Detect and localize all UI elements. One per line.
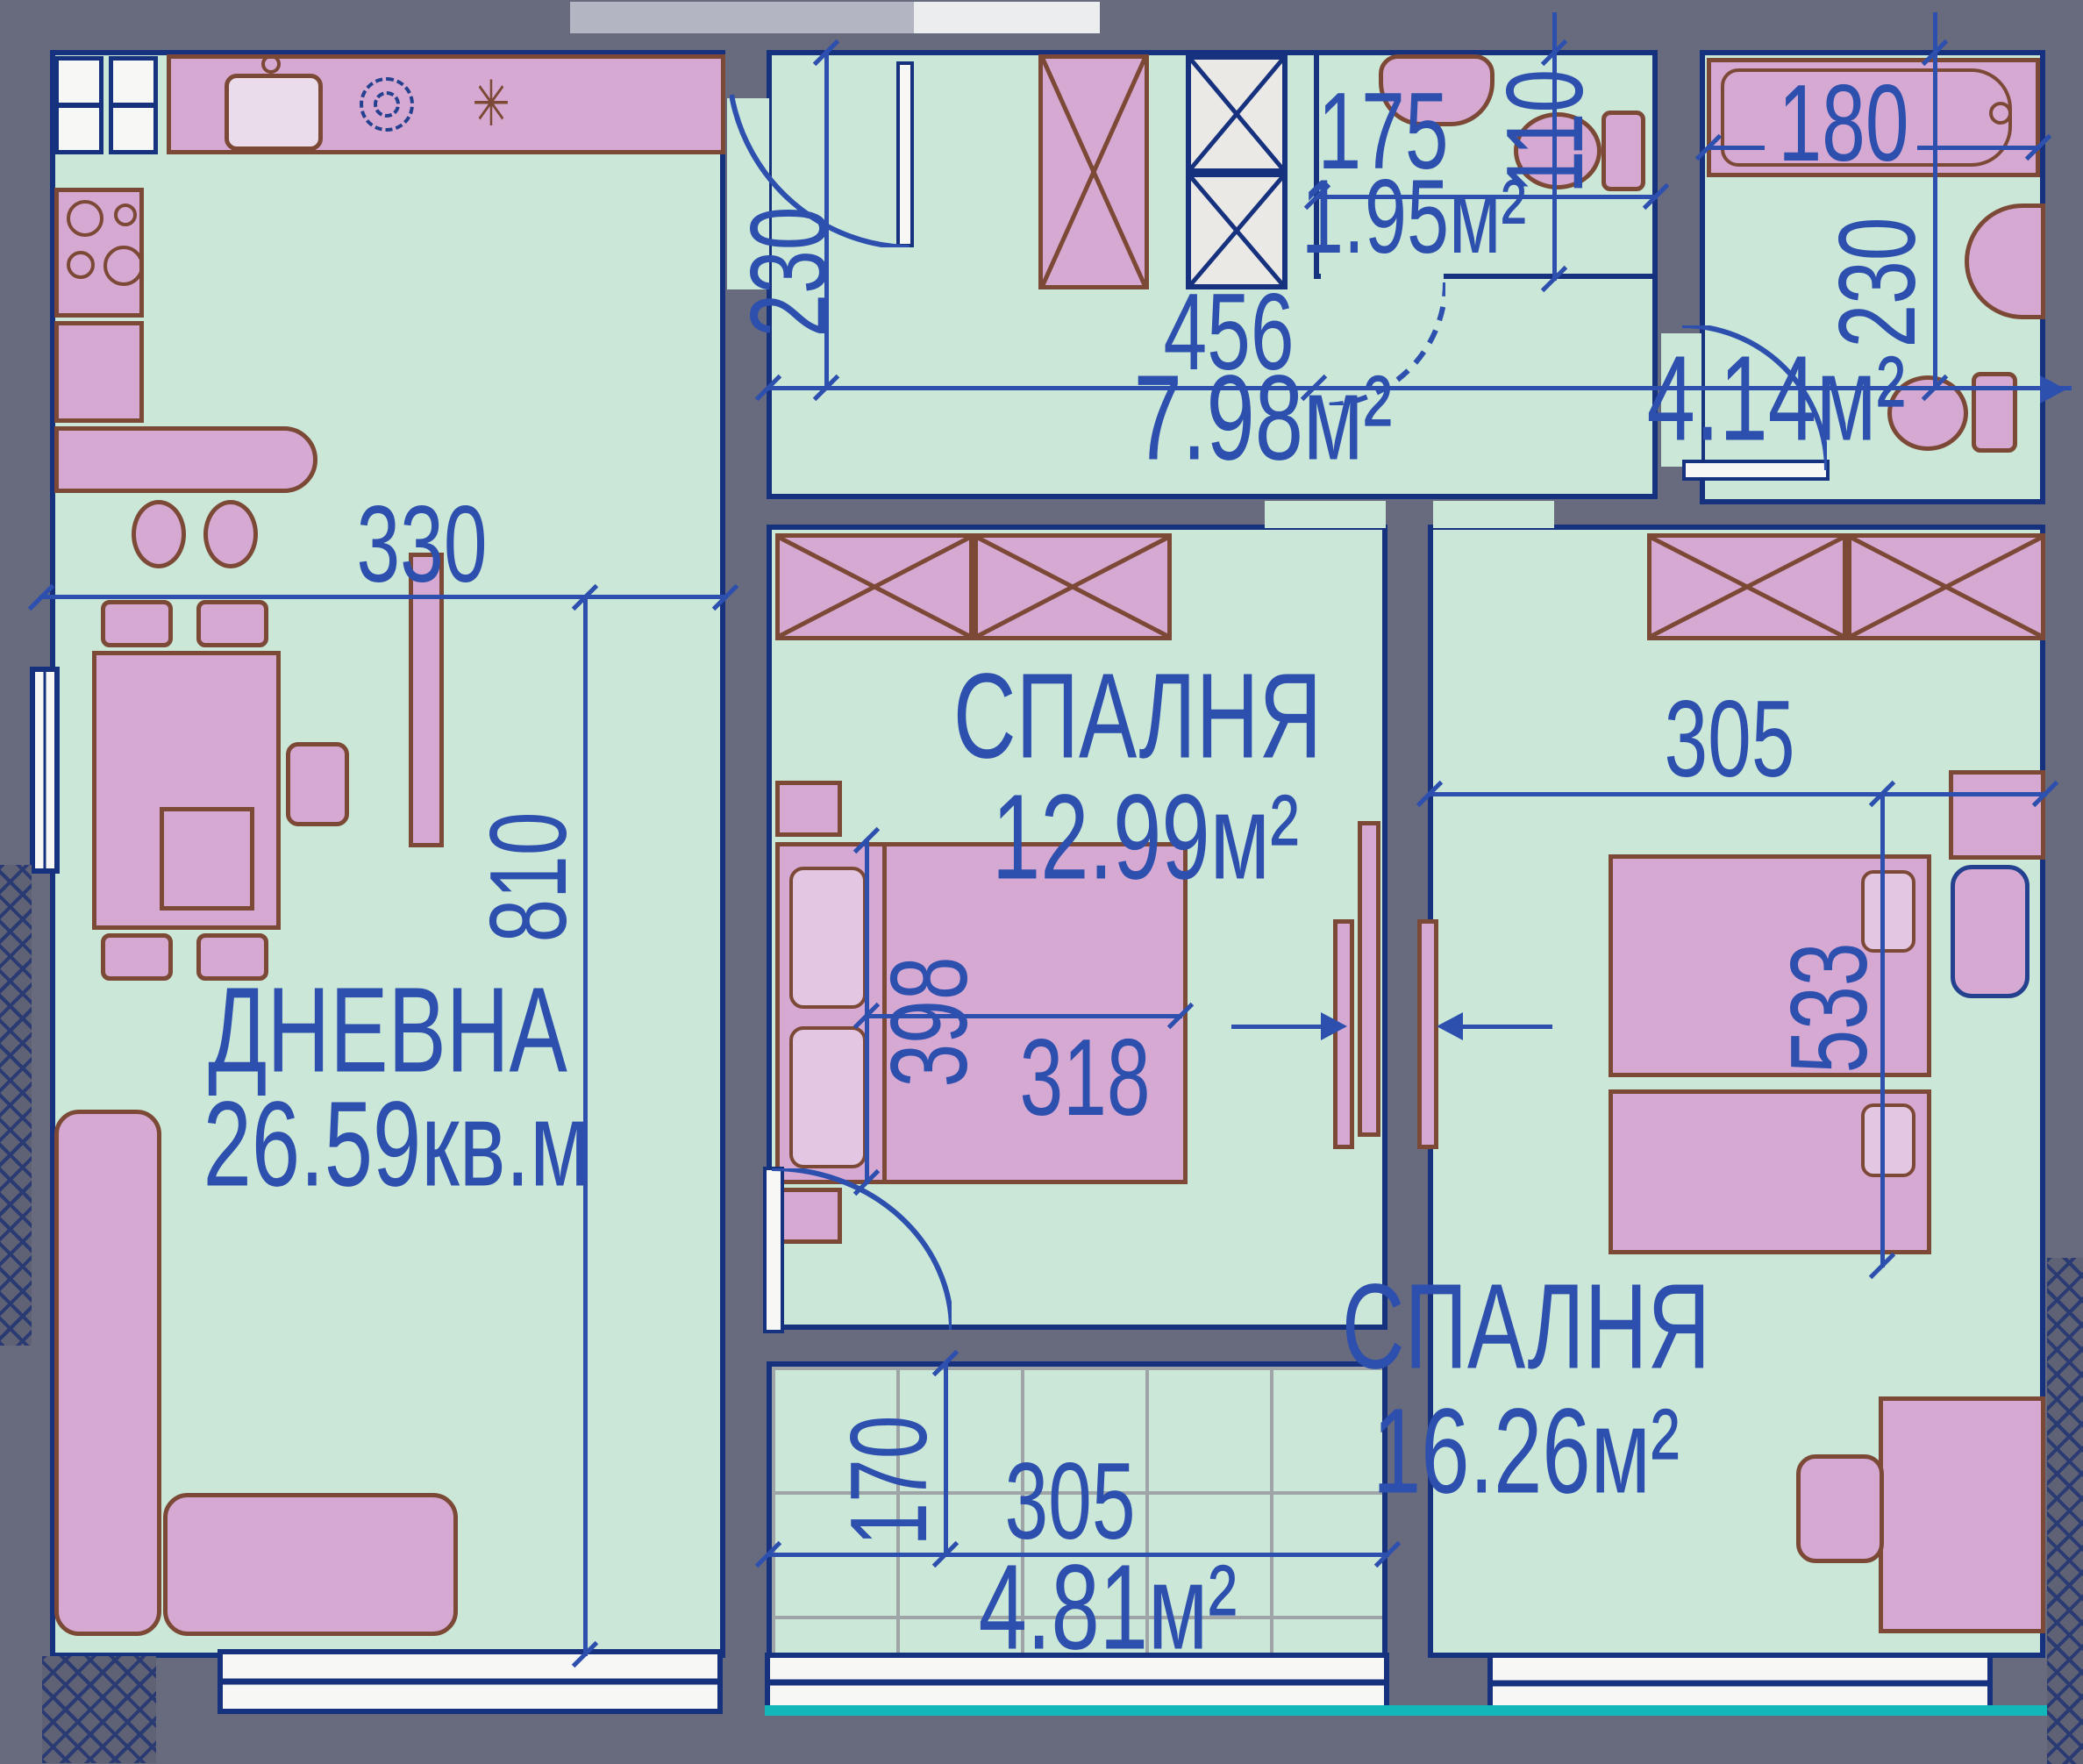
faucet-icon — [261, 54, 281, 74]
dim-305-bedroom2-label: 305 — [1665, 677, 1795, 802]
window-left-wall — [30, 667, 60, 874]
cooktop-spiral-inner-icon — [374, 91, 400, 118]
hatch-right-edge — [2047, 1258, 2083, 1764]
dim-230-bath-label: 230 — [1815, 218, 1940, 348]
bedroom2-name-label: СПАЛНЯ — [1342, 1258, 1710, 1397]
dining-chair-armrest — [286, 742, 349, 826]
wardrobe-section — [974, 533, 1172, 640]
dim-398-label: 398 — [867, 957, 992, 1088]
entrance-threshold — [914, 2, 1100, 33]
door-direction-arrow-icon — [1437, 1012, 1463, 1040]
dim-810-label: 810 — [467, 812, 591, 943]
living-area-label: 26.59кв.м — [203, 1075, 590, 1215]
dim-330-label: 330 — [357, 482, 488, 607]
bathtub-drain-icon — [1989, 102, 2012, 125]
hall-wardrobe — [1038, 54, 1149, 289]
window-living-bottom — [218, 1649, 723, 1714]
corner-cabinet — [1949, 770, 2045, 860]
bedroom2-area-label: 16.26м² — [1373, 1382, 1680, 1522]
wc-toilet-tank-icon — [1601, 111, 1645, 191]
burner-icon — [114, 204, 137, 226]
balcony-door-swing-icon — [772, 1168, 952, 1330]
dim-180-label: 180 — [1779, 61, 1909, 186]
pillow — [789, 867, 867, 1009]
opening-bedroom1-door — [1265, 501, 1386, 528]
dim-line-180 — [1707, 146, 1765, 150]
dining-chair — [196, 600, 268, 647]
nightstand — [775, 781, 842, 837]
kitchen-sink-icon — [225, 74, 323, 151]
bedroom1-name-label: СПАЛНЯ — [953, 647, 1322, 787]
sliding-door-panel — [1417, 919, 1438, 1149]
door-direction-line — [1231, 1025, 1321, 1029]
corner-sofa-horizontal — [163, 1493, 458, 1636]
hallway-area-label: 7.98м² — [1134, 349, 1393, 489]
dim-line-110-stub — [1552, 12, 1557, 50]
dim-170-label: 170 — [827, 1416, 952, 1546]
dim-line-230-bath-stub — [1933, 12, 1937, 50]
coffee-table — [160, 807, 254, 911]
wardrobe-section — [775, 533, 974, 640]
fridge-icon — [54, 56, 103, 154]
bar-stool — [132, 500, 186, 568]
kitchen-cabinet — [54, 321, 144, 423]
nightstand-round — [1951, 865, 2029, 998]
bath-toilet-tank-icon — [1972, 372, 2017, 453]
dining-chair — [101, 600, 173, 647]
dim-110-label: 110 — [1483, 69, 1608, 194]
installation-shaft — [1186, 54, 1288, 174]
hatch-left-edge — [0, 865, 32, 1346]
dim-318-label: 318 — [1020, 1016, 1151, 1140]
pillow — [789, 1026, 867, 1168]
freezer-icon — [109, 56, 158, 154]
teal-sill-line — [765, 1705, 2047, 1716]
pillow — [1861, 1103, 1915, 1177]
burner-icon — [67, 200, 103, 237]
hatch-bottom-left — [42, 1656, 156, 1763]
dim-230-hall-label: 230 — [727, 207, 852, 338]
balcony-area-label: 4.81м² — [979, 1539, 1238, 1678]
dining-chair — [101, 933, 173, 981]
wardrobe-section — [1647, 533, 1847, 640]
corner-sofa-vertical — [54, 1110, 161, 1636]
pillow — [1861, 870, 1915, 953]
door-direction-arrow-icon — [1321, 1012, 1347, 1040]
floor-plan: ✳ — [0, 0, 2083, 1764]
opening-bedroom2-door — [1433, 501, 1554, 528]
burner-icon — [67, 251, 95, 279]
dim-arrow-icon — [2040, 375, 2066, 404]
desk-chair — [1796, 1454, 1884, 1563]
tv-shelf — [1358, 821, 1380, 1137]
bar-stool — [203, 500, 258, 568]
burner-asterisk-icon: ✳ — [472, 67, 510, 140]
bar-counter — [54, 426, 317, 493]
dim-533-label: 533 — [1767, 943, 1892, 1074]
door-direction-line — [1463, 1025, 1552, 1029]
bedroom1-area-label: 12.99м² — [992, 768, 1299, 908]
wardrobe-section — [1847, 533, 2045, 640]
desk — [1879, 1396, 2045, 1633]
bathroom-area-label: 4.14м² — [1647, 330, 1906, 469]
burner-icon — [103, 246, 144, 286]
